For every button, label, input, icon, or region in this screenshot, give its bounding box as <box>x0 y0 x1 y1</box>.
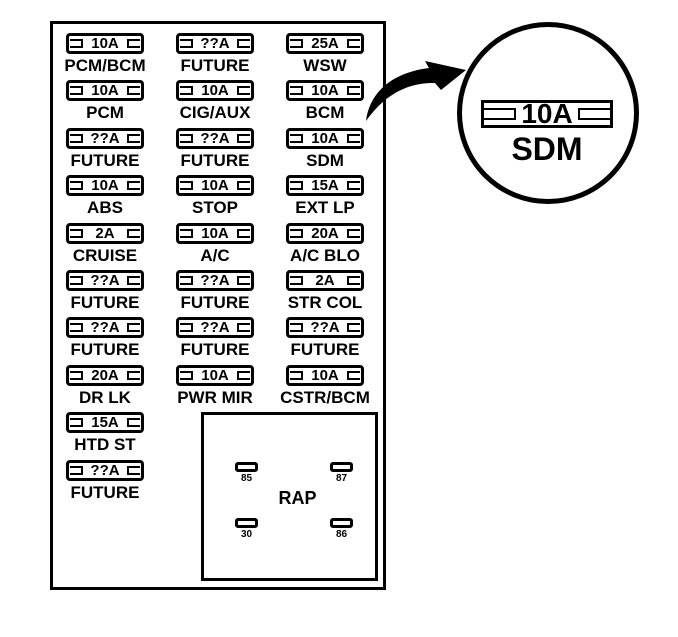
fuse-icon: 2A <box>286 270 364 291</box>
fuse-terminal-right-icon <box>127 134 140 143</box>
fuse-cell: 10A ABS <box>66 175 144 222</box>
fuse-label: PCM <box>86 104 124 121</box>
fuse-terminal-left-icon <box>70 134 83 143</box>
fuse-terminal-right-icon <box>237 181 250 190</box>
fuse-amp: 2A <box>315 273 334 288</box>
fuse-icon: 10A <box>66 80 144 101</box>
fuse-terminal-right-icon <box>127 39 140 48</box>
fuse-terminal-left-icon <box>70 466 83 475</box>
relay-pin-icon <box>235 518 258 528</box>
relay-label: RAP <box>212 489 383 507</box>
fuse-cell: 10A A/C <box>176 223 254 270</box>
fuse-label: HTD ST <box>74 436 135 453</box>
fuse-amp: 25A <box>311 36 339 51</box>
fuse-label: PWR MIR <box>177 389 253 406</box>
fuse-label: SDM <box>306 152 344 169</box>
fuse-terminal-right-icon <box>127 86 140 95</box>
fuse-icon: 20A <box>286 223 364 244</box>
fuse-terminal-right-icon <box>237 276 250 285</box>
fuse-amp: 2A <box>95 226 114 241</box>
relay-pin-label: 87 <box>330 474 353 484</box>
fuse-amp: 15A <box>311 178 339 193</box>
fuse-terminal-right-icon <box>127 181 140 190</box>
callout-fuse-icon: 10A <box>481 100 613 128</box>
relay-pin-icon <box>330 518 353 528</box>
fuse-column-2: ??A FUTURE 10A CIG/AUX ??A FUTURE 10A ST… <box>176 33 254 412</box>
fuse-cell: 15A EXT LP <box>286 175 364 222</box>
fuse-label: PCM/BCM <box>64 57 145 74</box>
fuse-cell: 20A A/C BLO <box>286 223 364 270</box>
fuse-terminal-right-icon <box>127 323 140 332</box>
fuse-icon: ??A <box>66 270 144 291</box>
fuse-icon: 10A <box>286 128 364 149</box>
fuse-label: STR COL <box>288 294 363 311</box>
fuse-terminal-left-icon <box>70 371 83 380</box>
fuse-terminal-left-icon <box>180 229 193 238</box>
fuse-icon: 10A <box>176 365 254 386</box>
fuse-amp: 10A <box>201 178 229 193</box>
fuse-cell: 10A STOP <box>176 175 254 222</box>
callout-arrow-icon <box>355 50 470 135</box>
fuse-terminal-right-icon <box>237 39 250 48</box>
fuse-icon: 10A <box>176 80 254 101</box>
fuse-icon: ??A <box>176 270 254 291</box>
fuse-icon: ??A <box>66 128 144 149</box>
fuse-cell: ??A FUTURE <box>66 317 144 364</box>
fuse-terminal-left-icon <box>180 39 193 48</box>
fuse-terminal-left-icon <box>290 181 303 190</box>
fuse-terminal-left-icon <box>180 86 193 95</box>
fuse-terminal-left-icon <box>484 108 516 120</box>
fuse-terminal-left-icon <box>70 181 83 190</box>
fuse-cell: ??A FUTURE <box>66 270 144 317</box>
fuse-cell: ??A FUTURE <box>66 128 144 175</box>
fuse-amp: 10A <box>201 226 229 241</box>
fuse-label: EXT LP <box>295 199 355 216</box>
fuse-cell: ??A FUTURE <box>176 33 254 80</box>
fuse-terminal-left-icon <box>290 276 303 285</box>
fuse-icon: ??A <box>176 128 254 149</box>
fuse-terminal-left-icon <box>290 39 303 48</box>
fuse-terminal-right-icon <box>127 229 140 238</box>
fuse-terminal-right-icon <box>127 371 140 380</box>
fuse-box-diagram: 10A PCM/BCM 10A PCM ??A FUTURE 10A ABS 2… <box>0 0 678 637</box>
fuse-icon: 20A <box>66 365 144 386</box>
fuse-cell: ??A FUTURE <box>176 270 254 317</box>
fuse-icon: ??A <box>176 317 254 338</box>
fuse-terminal-left-icon <box>180 181 193 190</box>
fuse-cell: 20A DR LK <box>66 365 144 412</box>
fuse-icon: 15A <box>286 175 364 196</box>
fuse-terminal-left-icon <box>180 371 193 380</box>
fuse-terminal-left-icon <box>290 371 303 380</box>
fuse-terminal-left-icon <box>180 323 193 332</box>
fuse-icon: 25A <box>286 33 364 54</box>
fuse-amp: 10A <box>311 83 339 98</box>
fuse-terminal-right-icon <box>347 371 360 380</box>
fuse-terminal-right-icon <box>237 323 250 332</box>
fuse-terminal-left-icon <box>180 276 193 285</box>
fuse-terminal-left-icon <box>290 229 303 238</box>
fuse-cell: 10A CSTR/BCM <box>286 365 364 412</box>
fuse-label: CIG/AUX <box>180 104 251 121</box>
fuse-amp: 20A <box>311 226 339 241</box>
fuse-label: FUTURE <box>71 294 140 311</box>
fuse-terminal-right-icon <box>127 418 140 427</box>
fuse-label: FUTURE <box>291 341 360 358</box>
fuse-terminal-right-icon <box>237 134 250 143</box>
fuse-terminal-left-icon <box>180 134 193 143</box>
fuse-amp: 10A <box>91 83 119 98</box>
fuse-terminal-left-icon <box>70 39 83 48</box>
fuse-cell: 2A CRUISE <box>66 223 144 270</box>
fuse-icon: 10A <box>176 223 254 244</box>
fuse-label: CSTR/BCM <box>280 389 370 406</box>
fuse-terminal-left-icon <box>290 134 303 143</box>
fuse-cell: 10A PCM <box>66 80 144 127</box>
fuse-label: FUTURE <box>181 152 250 169</box>
fuse-amp: 10A <box>201 368 229 383</box>
fuse-label: FUTURE <box>71 152 140 169</box>
fuse-label: A/C BLO <box>290 247 360 264</box>
fuse-terminal-left-icon <box>70 323 83 332</box>
fuse-cell: 10A CIG/AUX <box>176 80 254 127</box>
fuse-amp: ??A <box>200 36 229 51</box>
fuse-cell: 15A HTD ST <box>66 412 144 459</box>
fuse-icon: 10A <box>286 365 364 386</box>
fuse-cell: 2A STR COL <box>286 270 364 317</box>
fuse-icon: ??A <box>66 460 144 481</box>
fuse-cell: ??A FUTURE <box>176 317 254 364</box>
fuse-cell: ??A FUTURE <box>286 317 364 364</box>
fuse-amp: 10A <box>201 83 229 98</box>
fuse-terminal-right-icon <box>347 39 360 48</box>
fuse-amp: ??A <box>200 320 229 335</box>
relay-pin-label: 30 <box>235 530 258 540</box>
relay-pin-label: 86 <box>330 530 353 540</box>
fuse-label: FUTURE <box>71 341 140 358</box>
fuse-terminal-left-icon <box>70 86 83 95</box>
fuse-terminal-left-icon <box>290 86 303 95</box>
fuse-label: FUTURE <box>181 57 250 74</box>
fuse-terminal-right-icon <box>127 276 140 285</box>
fuse-terminal-left-icon <box>70 418 83 427</box>
fuse-cell: 10A PWR MIR <box>176 365 254 412</box>
relay-pin-icon <box>235 462 258 472</box>
fuse-terminal-right-icon <box>347 323 360 332</box>
fuse-label: STOP <box>192 199 238 216</box>
fuse-label: FUTURE <box>181 294 250 311</box>
fuse-label: CRUISE <box>73 247 137 264</box>
fuse-terminal-right-icon <box>127 466 140 475</box>
fuse-amp: ??A <box>90 320 119 335</box>
fuse-terminal-right-icon <box>347 276 360 285</box>
fuse-cell: ??A FUTURE <box>66 460 144 507</box>
fuse-cell: ??A FUTURE <box>176 128 254 175</box>
fuse-icon: 15A <box>66 412 144 433</box>
fuse-amp: 15A <box>91 415 119 430</box>
fuse-icon: 10A <box>176 175 254 196</box>
fuse-icon: 10A <box>66 33 144 54</box>
fuse-label: FUTURE <box>71 484 140 501</box>
fuse-column-1: 10A PCM/BCM 10A PCM ??A FUTURE 10A ABS 2… <box>66 33 144 507</box>
fuse-label: ABS <box>87 199 123 216</box>
fuse-amp: ??A <box>90 463 119 478</box>
fuse-terminal-right-icon <box>237 371 250 380</box>
fuse-label: DR LK <box>79 389 131 406</box>
fuse-terminal-left-icon <box>290 323 303 332</box>
fuse-label: WSW <box>303 57 346 74</box>
fuse-amp: 10A <box>91 36 119 51</box>
fuse-icon: 10A <box>286 80 364 101</box>
fuse-amp: 20A <box>91 368 119 383</box>
callout-fuse-label: SDM <box>481 133 613 165</box>
fuse-cell: 10A SDM <box>286 128 364 175</box>
fuse-terminal-right-icon <box>237 229 250 238</box>
fuse-label: FUTURE <box>181 341 250 358</box>
fuse-terminal-right-icon <box>578 108 610 120</box>
fuse-terminal-right-icon <box>237 86 250 95</box>
fuse-amp: ??A <box>200 273 229 288</box>
fuse-amp: 10A <box>311 131 339 146</box>
fuse-icon: 10A <box>66 175 144 196</box>
fuse-cell: 10A PCM/BCM <box>66 33 144 80</box>
fuse-amp: ??A <box>90 131 119 146</box>
fuse-icon: ??A <box>66 317 144 338</box>
fuse-amp: ??A <box>310 320 339 335</box>
fuse-amp: 10A <box>311 368 339 383</box>
fuse-terminal-left-icon <box>70 229 83 238</box>
fuse-amp: ??A <box>90 273 119 288</box>
fuse-terminal-right-icon <box>347 229 360 238</box>
fuse-terminal-right-icon <box>347 181 360 190</box>
fuse-amp: 10A <box>91 178 119 193</box>
fuse-icon: ??A <box>286 317 364 338</box>
fuse-cell: 10A BCM <box>286 80 364 127</box>
fuse-amp: ??A <box>200 131 229 146</box>
relay-pin-label: 85 <box>235 474 258 484</box>
fuse-icon: 2A <box>66 223 144 244</box>
fuse-cell: 25A WSW <box>286 33 364 80</box>
fuse-icon: ??A <box>176 33 254 54</box>
rap-relay-box: 85 87 30 86 RAP <box>201 412 378 581</box>
fuse-terminal-left-icon <box>70 276 83 285</box>
relay-pin-icon <box>330 462 353 472</box>
fuse-label: BCM <box>306 104 345 121</box>
callout-fuse-amp: 10A <box>521 100 572 128</box>
fuse-terminal-right-icon <box>347 134 360 143</box>
fuse-column-3: 25A WSW 10A BCM 10A SDM 15A EXT LP 20A A… <box>286 33 364 412</box>
fuse-label: A/C <box>200 247 229 264</box>
